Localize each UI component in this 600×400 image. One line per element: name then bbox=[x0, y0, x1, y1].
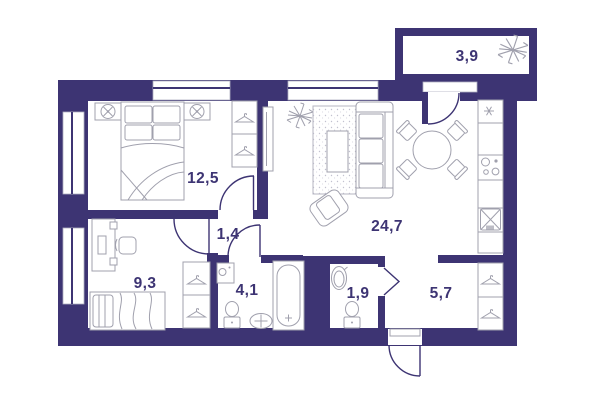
room-label-hallway: 5,7 bbox=[430, 285, 453, 302]
plant-icon bbox=[287, 103, 313, 128]
balcony-door-sill bbox=[423, 82, 477, 92]
wall-corridor-pillar bbox=[253, 210, 268, 219]
wall-wc-right-bottom bbox=[378, 296, 385, 330]
room-label-wc: 1,9 bbox=[347, 285, 370, 302]
balcony-door-jamb bbox=[422, 92, 428, 124]
dining-table bbox=[413, 131, 451, 169]
washing-machine bbox=[217, 263, 234, 283]
wardrobe-office bbox=[183, 262, 210, 328]
wall-wc-top bbox=[330, 256, 385, 264]
balcony-door-opening bbox=[428, 92, 460, 101]
dining-chair bbox=[446, 120, 468, 142]
wall-right bbox=[503, 101, 517, 346]
dining-chair bbox=[396, 158, 418, 180]
room-label-bedroom: 12,5 bbox=[187, 170, 219, 187]
dining-chair bbox=[446, 158, 468, 180]
bathroom-furniture bbox=[217, 261, 304, 330]
sofa bbox=[356, 102, 393, 198]
hallway-furniture bbox=[478, 263, 503, 330]
kitchen-sink-icon bbox=[481, 209, 501, 230]
wardrobe-bedroom bbox=[232, 101, 257, 167]
entrance-threshold bbox=[390, 329, 420, 336]
room-label-office: 9,3 bbox=[134, 275, 157, 292]
window-office-left bbox=[63, 228, 84, 304]
wall-hallway-top bbox=[438, 255, 503, 263]
bathtub bbox=[273, 261, 304, 330]
window-living-top bbox=[288, 81, 378, 100]
desk-chair bbox=[116, 237, 137, 254]
wc-sink bbox=[332, 267, 348, 290]
window-glass-line bbox=[71, 112, 73, 194]
room-label-living: 24,7 bbox=[371, 218, 403, 235]
bedroom-furniture bbox=[95, 101, 273, 200]
double-bed bbox=[121, 102, 184, 200]
entrance-door-arc bbox=[389, 345, 420, 376]
wall-shaft-block bbox=[303, 256, 330, 330]
kitchen-counter bbox=[478, 100, 503, 253]
window-bedroom-left bbox=[63, 112, 84, 194]
desk bbox=[92, 219, 117, 271]
room-label-corridor: 1,4 bbox=[217, 226, 240, 243]
wall-wc-right-top bbox=[378, 256, 385, 267]
dining-chair bbox=[396, 120, 418, 142]
toilet bbox=[224, 302, 240, 329]
toilet bbox=[344, 302, 360, 329]
room-label-balcony: 3,9 bbox=[456, 48, 479, 65]
window-bedroom-top bbox=[153, 81, 230, 100]
tv-panel bbox=[263, 107, 273, 171]
room-label-bathroom: 4,1 bbox=[236, 282, 259, 299]
window-glass-line bbox=[71, 228, 73, 304]
rug-inner bbox=[327, 131, 348, 172]
window-glass-line bbox=[153, 87, 230, 89]
wall-bottom bbox=[58, 328, 517, 346]
floor-plan: 12,5 24,7 3,9 9,3 1,4 4,1 1,9 5,7 bbox=[0, 0, 600, 400]
wall-bedroom-bottom bbox=[88, 210, 218, 219]
window-glass-line bbox=[288, 87, 378, 89]
pedestal-sink bbox=[250, 314, 272, 329]
wc-door-fold bbox=[384, 268, 399, 295]
single-bed bbox=[90, 292, 165, 330]
floor-plan-canvas: 12,5 24,7 3,9 9,3 1,4 4,1 1,9 5,7 bbox=[0, 0, 600, 400]
office-door-arc bbox=[174, 219, 209, 254]
bedroom-door-arc bbox=[220, 176, 254, 210]
